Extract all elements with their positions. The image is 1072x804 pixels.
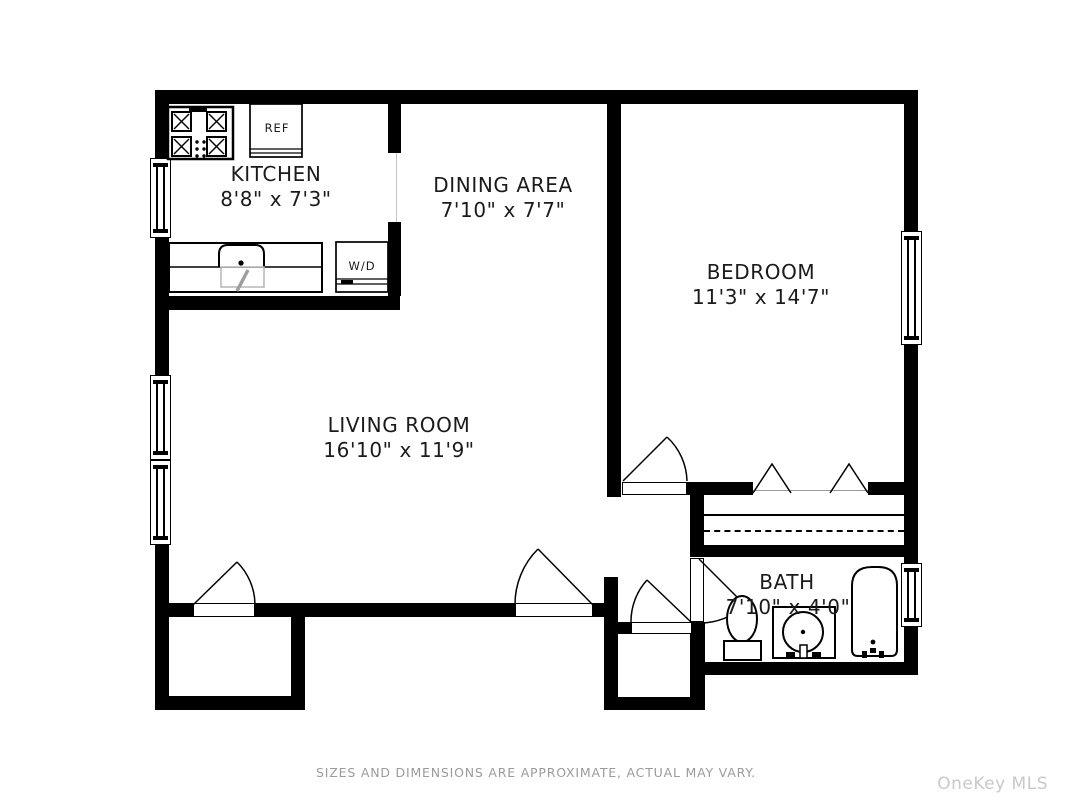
window-glass: [156, 167, 165, 229]
kitchen-counter-icon: [169, 243, 322, 292]
bath-dimensions: 7'10" x 4'0": [726, 597, 851, 617]
bedroom-window: [901, 231, 922, 345]
bedroom-door-threshold: [622, 482, 687, 495]
wall-bath-bottom: [705, 662, 918, 675]
bathtub-icon: [852, 567, 897, 658]
bath-door-threshold: [690, 558, 704, 622]
closet-door-swing: [193, 562, 255, 605]
wall-bath-top: [690, 545, 907, 557]
closet-door-threshold: [193, 603, 255, 617]
closet-rod-dashed-line: [704, 530, 904, 532]
wall-bedroom-bottom-b: [868, 482, 907, 495]
window-glass: [156, 469, 165, 536]
wall-closet-bottom: [155, 696, 305, 710]
wall-right-mid: [904, 345, 918, 563]
hall-door-threshold: [631, 622, 692, 634]
dining-area-dimensions: 7'10" x 7'7": [441, 200, 566, 220]
wall-entry-left: [604, 577, 618, 710]
kitchen-opening-line: [396, 153, 397, 222]
wall-left-upper: [155, 90, 169, 158]
bath-label: BATH: [759, 572, 815, 592]
window-glass: [907, 572, 916, 618]
stove-icon: [168, 107, 233, 159]
dining-area-label: DINING AREA: [433, 175, 572, 195]
wall-top: [155, 90, 918, 104]
entry-door-threshold: [515, 603, 593, 617]
wall-bedroom-divider: [607, 90, 621, 497]
onekey-mls-watermark: OneKey MLS: [937, 774, 1048, 794]
wall-living-bottom-a: [155, 603, 193, 617]
living-room-window-upper: [150, 375, 171, 460]
bedroom-door-swing: [623, 437, 687, 481]
wall-left-lower: [155, 545, 169, 710]
bedroom-label: BEDROOM: [707, 262, 816, 282]
wall-right-lower: [904, 627, 918, 675]
bedroom-dimensions: 11'3" x 14'7": [692, 287, 830, 307]
closet-shelf-line: [704, 514, 904, 516]
washer-dryer-label: W/D: [348, 260, 375, 272]
living-room-window-lower: [150, 460, 171, 545]
window-glass: [156, 384, 165, 451]
wall-kitchen-bottom: [155, 296, 400, 310]
living-room-label: LIVING ROOM: [328, 415, 471, 435]
wall-living-bottom-b: [255, 603, 515, 617]
disclaimer-text: SIZES AND DIMENSIONS ARE APPROXIMATE, AC…: [0, 765, 1072, 780]
wall-kitchen-divider-lower: [388, 222, 401, 296]
refrigerator-label: REF: [265, 122, 290, 134]
bath-window: [901, 563, 922, 627]
wall-entry-bottom: [604, 697, 705, 710]
bifold-track-line: [753, 490, 868, 491]
hall-door-swing: [631, 580, 692, 623]
kitchen-window: [150, 158, 171, 238]
window-glass: [907, 240, 916, 336]
wall-closet-right: [291, 615, 305, 710]
bifold-closet-doors: [753, 464, 868, 493]
floorplan-canvas: KITCHEN 8'8" x 7'3" DINING AREA 7'10" x …: [0, 0, 1072, 804]
kitchen-label: KITCHEN: [231, 164, 322, 184]
wall-kitchen-divider-upper: [388, 104, 401, 153]
wall-hall-door-jamb: [618, 622, 631, 634]
wall-right-upper: [904, 90, 918, 231]
entry-door-swing: [515, 549, 593, 605]
living-room-dimensions: 16'10" x 11'9": [323, 440, 474, 460]
kitchen-dimensions: 8'8" x 7'3": [220, 189, 331, 209]
